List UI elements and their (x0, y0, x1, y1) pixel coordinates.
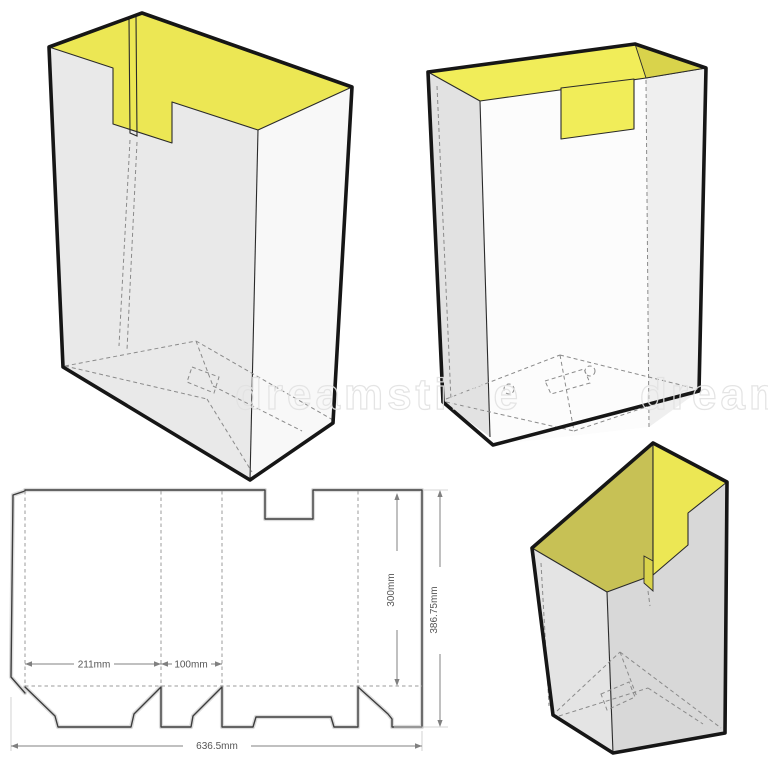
extension-lines (11, 490, 448, 751)
dimension-total-height: 386.75mm (429, 586, 440, 633)
dimension-total-width: 636.5mm (196, 741, 238, 752)
box1-right-wall (250, 87, 352, 480)
box-view-back-top (532, 443, 727, 753)
illustration-svg: 211mm 100mm 300mm 386.75mm 636.5mm dream… (0, 0, 768, 768)
dimension-gusset-width: 100mm (174, 660, 207, 671)
dieline-fold-lines (25, 491, 422, 686)
watermark: dreamstime dreamstime (235, 370, 768, 419)
dieline-cut-halo (11, 490, 422, 727)
dimension-annotations: 211mm 100mm 300mm 386.75mm 636.5mm (11, 490, 448, 752)
watermark-text-partial: dreamstime (640, 370, 768, 419)
dimension-panel-width: 211mm (78, 660, 111, 671)
dimension-panel-height: 300mm (386, 573, 397, 606)
dieline-template: 211mm 100mm 300mm 386.75mm 636.5mm (11, 490, 448, 752)
watermark-text: dreamstime (235, 370, 522, 419)
box2-notch-window-yellow (561, 79, 634, 139)
packaging-dieline-illustration: 211mm 100mm 300mm 386.75mm 636.5mm dream… (0, 0, 768, 768)
